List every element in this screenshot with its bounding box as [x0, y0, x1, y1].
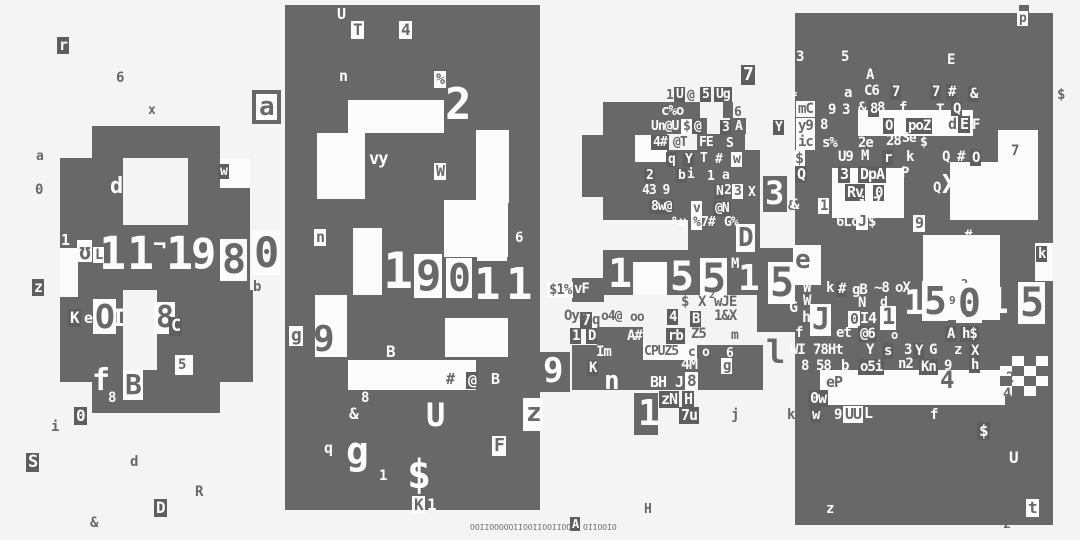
- noise-glyph: wJE: [714, 295, 736, 309]
- noise-block: [1012, 366, 1024, 376]
- noise-glyph: F: [492, 436, 506, 456]
- noise-glyph: 1: [427, 497, 436, 513]
- noise-glyph: c%o: [661, 104, 683, 118]
- noise-glyph: DpA: [858, 166, 886, 183]
- noise-glyph: 4: [667, 309, 678, 325]
- noise-glyph: F: [972, 118, 979, 132]
- noise-glyph: k: [906, 150, 913, 164]
- noise-glyph: d: [130, 455, 137, 469]
- noise-glyph: N: [858, 296, 865, 310]
- noise-glyph: &: [968, 86, 979, 102]
- noise-glyph: c: [652, 277, 660, 292]
- noise-glyph: r: [882, 150, 893, 166]
- noise-glyph: BH: [650, 375, 666, 390]
- noise-glyph: 1: [506, 263, 532, 307]
- noise-glyph: #: [446, 372, 454, 387]
- noise-glyph: 1: [987, 284, 1008, 320]
- noise-glyph: vF: [574, 282, 589, 296]
- noise-glyph: J: [856, 213, 868, 230]
- noise-glyph: $: [681, 295, 688, 309]
- noise-glyph: z: [954, 343, 961, 357]
- noise-glyph: 7: [741, 65, 755, 85]
- noise-glyph: 1: [61, 233, 69, 248]
- noise-glyph: J: [675, 375, 683, 390]
- noise-glyph: t: [1026, 499, 1039, 517]
- noise-block: [92, 126, 220, 158]
- noise-glyph: j: [731, 408, 738, 422]
- noise-glyph: f: [930, 408, 937, 422]
- noise-glyph: a: [965, 308, 971, 319]
- noise-glyph: &: [858, 101, 865, 115]
- noise-glyph: 8: [877, 101, 884, 115]
- noise-glyph: 2: [724, 184, 731, 197]
- noise-glyph: J: [810, 304, 831, 336]
- noise-glyph: 7u: [679, 407, 699, 424]
- noise-glyph: D: [736, 224, 755, 252]
- noise-glyph: 1: [474, 263, 500, 307]
- noise-glyph: a: [844, 86, 851, 100]
- noise-glyph: e: [795, 247, 810, 273]
- noise-glyph: Oya: [564, 309, 586, 323]
- noise-glyph: X: [942, 172, 957, 198]
- noise-glyph: &: [791, 198, 798, 212]
- noise-glyph: H: [644, 503, 651, 516]
- noise-glyph: j: [834, 391, 841, 405]
- noise-glyph: A: [570, 517, 580, 531]
- noise-glyph: 1: [570, 328, 581, 344]
- noise-glyph: 3: [765, 177, 783, 209]
- noise-glyph: q: [592, 313, 599, 327]
- noise-cutout: [950, 162, 1000, 220]
- noise-glyph: 0w: [808, 390, 828, 407]
- noise-glyph: 78Ht: [813, 343, 843, 357]
- noise-glyph: o4@: [601, 310, 621, 323]
- noise-glyph: B: [491, 372, 499, 387]
- noise-glyph: 1: [904, 286, 923, 320]
- noise-glyph: n2: [898, 357, 913, 371]
- noise-glyph: Kn: [919, 359, 938, 375]
- noise-cutout: [820, 370, 1005, 405]
- noise-glyph: UU: [843, 406, 863, 423]
- noise-glyph: 8: [685, 372, 698, 390]
- noise-glyph: 9: [313, 322, 334, 358]
- noise-glyph: 9: [543, 354, 562, 388]
- noise-glyph: Q: [795, 166, 807, 183]
- noise-glyph: Im: [596, 345, 611, 359]
- noise-glyph: k: [826, 281, 833, 295]
- noise-glyph: 6: [515, 231, 522, 245]
- noise-glyph: 5: [670, 257, 693, 297]
- noise-block: [1012, 386, 1024, 396]
- noise-glyph: @: [692, 119, 703, 134]
- noise-glyph: 5: [178, 358, 185, 372]
- noise-glyph: a: [722, 169, 729, 182]
- noise-glyph: r: [57, 37, 69, 54]
- noise-glyph: CPUZ5: [644, 345, 678, 358]
- noise-glyph: A: [866, 68, 873, 82]
- noise-glyph: $: [920, 136, 927, 149]
- noise-glyph: ~8: [874, 281, 889, 295]
- noise-glyph: 2: [1006, 371, 1013, 385]
- noise-glyph: 7: [1011, 144, 1018, 158]
- noise-glyph: 28: [886, 134, 901, 148]
- noise-glyph: Q: [942, 150, 949, 164]
- noise-glyph: o: [702, 346, 709, 359]
- noise-glyph: 3: [732, 184, 743, 199]
- noise-glyph: X: [698, 295, 705, 309]
- noise-glyph: 6: [734, 106, 741, 119]
- noise-glyph: 9: [834, 408, 841, 422]
- noise-cutout: [60, 248, 78, 297]
- noise-block: [723, 102, 733, 118]
- noise-glyph: $: [868, 215, 875, 229]
- noise-glyph: 5: [841, 50, 848, 64]
- noise-glyph: 4: [399, 21, 412, 39]
- noise-glyph: I: [111, 306, 124, 330]
- noise-glyph: oo: [630, 311, 644, 324]
- noise-glyph: E: [958, 116, 970, 133]
- noise-glyph: 3: [720, 120, 731, 135]
- noise-glyph: A: [945, 326, 956, 342]
- noise-glyph: S: [726, 137, 733, 150]
- noise-glyph: a: [252, 90, 281, 124]
- noise-glyph: z: [826, 502, 833, 516]
- noise-glyph: E: [947, 53, 954, 67]
- noise-glyph: 4: [940, 368, 953, 392]
- noise-glyph: 1: [383, 246, 412, 296]
- noise-glyph: 1: [99, 231, 125, 276]
- noise-glyph: y9: [796, 118, 815, 134]
- noise-glyph: C: [169, 317, 182, 336]
- noise-glyph: &: [90, 516, 97, 530]
- noise-glyph: s: [881, 391, 888, 405]
- noise-glyph: B: [386, 344, 395, 360]
- noise-glyph: 6: [116, 71, 123, 85]
- noise-glyph: i: [51, 420, 58, 434]
- noise-glyph: a: [36, 150, 43, 163]
- noise-glyph: g: [289, 326, 303, 346]
- noise-cutout: [445, 318, 508, 357]
- noise-glyph: x: [148, 104, 155, 117]
- noise-glyph: $: [407, 455, 430, 495]
- noise-glyph: I4: [860, 311, 876, 326]
- noise-glyph: O: [883, 118, 894, 134]
- noise-glyph: q: [324, 441, 332, 456]
- noise-glyph: 1: [127, 231, 153, 276]
- noise-cutout: [633, 262, 667, 295]
- noise-block: [1036, 386, 1048, 396]
- noise-glyph: s%: [822, 136, 837, 150]
- noise-glyph: 9: [828, 103, 835, 117]
- noise-block: [1036, 366, 1048, 376]
- noise-glyph: Ug: [714, 87, 732, 102]
- noise-glyph: 1: [379, 469, 386, 483]
- noise-glyph: rb: [666, 328, 685, 344]
- noise-glyph: 1: [638, 396, 659, 432]
- noise-glyph: D: [586, 328, 597, 344]
- noise-glyph: h$: [960, 326, 979, 342]
- noise-glyph: 8: [361, 391, 368, 405]
- noise-glyph: w: [218, 164, 229, 179]
- noise-glyph: n: [604, 368, 619, 394]
- noise-glyph: 9: [191, 233, 215, 275]
- noise-glyph: W: [434, 163, 446, 180]
- noise-cutout: [348, 100, 444, 133]
- noise-glyph: 0: [35, 183, 42, 197]
- noise-glyph: P: [901, 166, 908, 180]
- noise-glyph: Y: [773, 120, 784, 135]
- noise-glyph: K: [68, 309, 81, 327]
- noise-glyph: U: [674, 87, 685, 102]
- noise-cutout: [476, 130, 509, 203]
- noise-glyph: 0: [74, 407, 87, 425]
- noise-cutout: [444, 200, 508, 257]
- noise-glyph: M: [858, 390, 865, 404]
- noise-glyph: $: [977, 422, 990, 440]
- noise-block: [582, 135, 635, 197]
- noise-glyph: b: [676, 168, 687, 183]
- noise-glyph: $: [681, 119, 692, 134]
- noise-glyph: g: [346, 432, 368, 470]
- noise-glyph: z: [524, 399, 543, 427]
- noise-glyph: &: [349, 406, 358, 422]
- noise-glyph: S: [26, 453, 39, 472]
- noise-canvas: r6xa0ziSdRD&dwa1ʊL11¬1980KeOI8C5fB80UT4n…: [0, 0, 1080, 540]
- noise-glyph: d: [110, 176, 122, 198]
- noise-glyph: $: [1057, 88, 1064, 102]
- noise-glyph: 9: [414, 254, 442, 298]
- noise-glyph: 8w@: [649, 199, 673, 214]
- noise-glyph: Se: [902, 132, 916, 145]
- noise-glyph: f: [92, 366, 109, 396]
- noise-glyph: G: [929, 343, 936, 357]
- noise-glyph: f: [795, 326, 802, 340]
- noise-glyph: @: [466, 372, 478, 389]
- noise-glyph: $1%: [547, 282, 573, 298]
- noise-glyph: A: [735, 120, 742, 133]
- noise-glyph: 1: [707, 170, 714, 183]
- noise-glyph: 3: [842, 103, 849, 117]
- noise-glyph: h: [802, 310, 810, 325]
- noise-glyph: T: [351, 21, 364, 39]
- noise-glyph: 43 9: [642, 184, 669, 197]
- noise-glyph: b: [253, 280, 260, 294]
- noise-glyph: g: [721, 358, 732, 374]
- noise-block: [1024, 356, 1036, 366]
- noise-glyph: mC: [796, 101, 815, 117]
- noise-glyph: OIIOOIO: [583, 524, 617, 532]
- noise-glyph: f: [899, 101, 906, 115]
- noise-glyph: w: [810, 407, 821, 423]
- noise-glyph: K: [412, 496, 425, 514]
- noise-glyph: v: [691, 201, 702, 216]
- noise-glyph: L: [864, 406, 872, 421]
- noise-glyph: 1: [880, 306, 896, 330]
- noise-glyph: Y: [913, 343, 924, 359]
- noise-glyph: OOIIOOOOOIIOOIIOOIIOOIC: [470, 524, 581, 532]
- noise-glyph: 2: [644, 168, 655, 183]
- noise-glyph: l: [766, 336, 784, 368]
- noise-glyph: 0: [446, 258, 472, 298]
- noise-glyph: B: [690, 311, 701, 327]
- noise-glyph: q: [666, 152, 677, 167]
- noise-glyph: 7: [930, 84, 941, 100]
- noise-glyph: b: [841, 359, 848, 373]
- noise-glyph: 5: [1018, 282, 1045, 324]
- noise-glyph: s: [882, 343, 893, 359]
- noise-glyph: #: [715, 153, 722, 166]
- noise-glyph: 1: [608, 254, 631, 294]
- noise-glyph: v: [835, 200, 842, 213]
- noise-block: [1000, 356, 1012, 366]
- noise-glyph: 4: [1003, 387, 1010, 401]
- noise-glyph: 6Lc: [836, 215, 858, 229]
- noise-glyph: i: [687, 168, 694, 181]
- noise-glyph: U: [1009, 450, 1018, 466]
- noise-glyph: #: [836, 281, 847, 297]
- noise-glyph: O: [970, 150, 981, 166]
- noise-glyph: zN: [659, 391, 679, 408]
- noise-glyph: 1: [166, 231, 192, 276]
- noise-glyph: e: [84, 311, 92, 326]
- noise-glyph: 8: [108, 391, 115, 405]
- noise-glyph: w: [731, 152, 742, 167]
- noise-glyph: o5i: [858, 359, 884, 375]
- noise-glyph: 9: [913, 215, 925, 232]
- noise-glyph: Y: [866, 343, 873, 357]
- noise-glyph: 9: [949, 295, 955, 306]
- noise-glyph: ic: [796, 134, 815, 150]
- noise-glyph: @: [687, 89, 694, 102]
- noise-glyph: 3: [904, 343, 911, 357]
- noise-glyph: #: [964, 229, 971, 243]
- noise-glyph: 0: [252, 231, 280, 275]
- noise-glyph: 3: [838, 166, 850, 183]
- noise-glyph: U: [426, 399, 444, 431]
- noise-glyph: k: [1036, 246, 1047, 262]
- noise-glyph: #: [946, 84, 957, 100]
- noise-glyph: 8: [220, 239, 247, 281]
- noise-glyph: 58: [816, 359, 831, 373]
- noise-glyph: %u: [672, 216, 686, 229]
- noise-glyph: 5: [922, 281, 948, 321]
- noise-glyph: n: [339, 69, 347, 84]
- noise-cutout: [348, 360, 476, 390]
- noise-glyph: B: [123, 370, 143, 400]
- noise-glyph: T: [700, 152, 707, 165]
- noise-glyph: A#: [627, 329, 642, 343]
- noise-glyph: 4M: [681, 357, 697, 372]
- noise-glyph: n: [314, 229, 326, 246]
- noise-glyph: U9: [838, 150, 853, 164]
- noise-glyph: 3: [796, 50, 803, 64]
- noise-glyph: ʊ: [77, 240, 92, 262]
- noise-glyph: WI: [790, 343, 805, 357]
- noise-glyph: 7: [890, 84, 901, 100]
- noise-glyph: J: [1044, 262, 1051, 276]
- noise-glyph: m: [731, 329, 738, 342]
- noise-glyph: p: [1017, 11, 1028, 26]
- noise-glyph: Z5: [691, 327, 706, 341]
- noise-cutout: [317, 133, 365, 199]
- noise-glyph: FE: [699, 136, 713, 149]
- noise-glyph: o: [891, 329, 897, 341]
- noise-glyph: 1: [738, 261, 759, 297]
- noise-glyph: vy: [369, 151, 387, 168]
- noise-glyph: eP: [826, 375, 842, 390]
- noise-glyph: T: [936, 103, 943, 117]
- noise-glyph: C6: [864, 84, 879, 98]
- noise-glyph: ¬: [153, 235, 165, 257]
- noise-glyph: 5: [700, 87, 711, 102]
- noise-glyph: @T: [673, 136, 687, 149]
- noise-glyph: X: [748, 186, 755, 199]
- noise-glyph: et: [836, 326, 851, 340]
- noise-glyph: Y: [683, 152, 694, 167]
- noise-glyph: 2: [445, 83, 471, 127]
- noise-glyph: 1: [354, 249, 382, 297]
- noise-block: [1024, 376, 1036, 386]
- noise-glyph: D: [154, 499, 167, 517]
- noise-glyph: #: [957, 150, 964, 164]
- noise-glyph: G: [789, 300, 797, 315]
- noise-glyph: d: [946, 116, 958, 133]
- noise-glyph: 7#: [701, 216, 715, 229]
- noise-glyph: R: [195, 485, 202, 499]
- noise-glyph: jE7: [858, 196, 880, 210]
- noise-glyph: Q: [933, 181, 940, 195]
- noise-glyph: K: [587, 360, 598, 376]
- noise-glyph: 8: [820, 118, 827, 132]
- noise-glyph: 4#: [651, 135, 669, 150]
- noise-glyph: 8: [801, 359, 808, 373]
- noise-glyph: @N: [713, 201, 731, 216]
- noise-glyph: h: [969, 357, 980, 373]
- noise-glyph: 1: [818, 198, 829, 214]
- noise-glyph: M: [861, 149, 868, 163]
- noise-glyph: z: [1003, 518, 1010, 531]
- noise-glyph: z: [32, 279, 44, 296]
- noise-glyph: Un@U: [651, 120, 678, 133]
- noise-glyph: 1&X: [714, 309, 736, 323]
- noise-glyph: 1: [666, 89, 673, 102]
- noise-glyph: @6: [858, 326, 877, 342]
- noise-glyph: k: [787, 408, 794, 422]
- noise-glyph: U: [337, 7, 345, 22]
